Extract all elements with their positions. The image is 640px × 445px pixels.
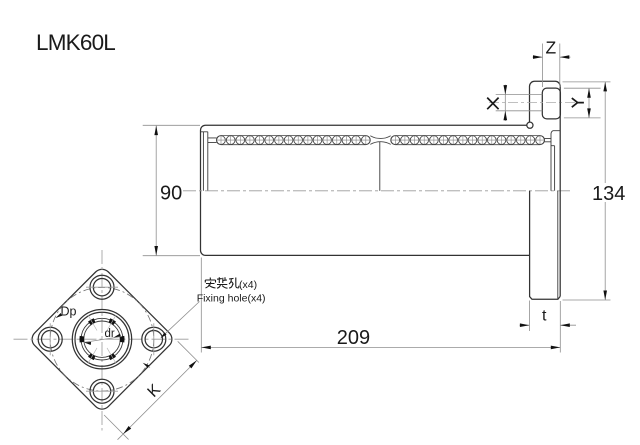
- svg-text:(x4): (x4): [239, 279, 257, 291]
- svg-text:Z: Z: [546, 38, 557, 58]
- svg-text:134: 134: [592, 183, 625, 205]
- svg-text:Fixing hole(x4): Fixing hole(x4): [197, 292, 266, 304]
- svg-text:dr: dr: [105, 328, 115, 340]
- svg-text:Dp: Dp: [61, 305, 77, 319]
- svg-text:209: 209: [337, 327, 370, 349]
- svg-text:LMK60L: LMK60L: [36, 30, 115, 55]
- svg-text:90: 90: [160, 182, 182, 204]
- svg-text:t: t: [542, 307, 547, 324]
